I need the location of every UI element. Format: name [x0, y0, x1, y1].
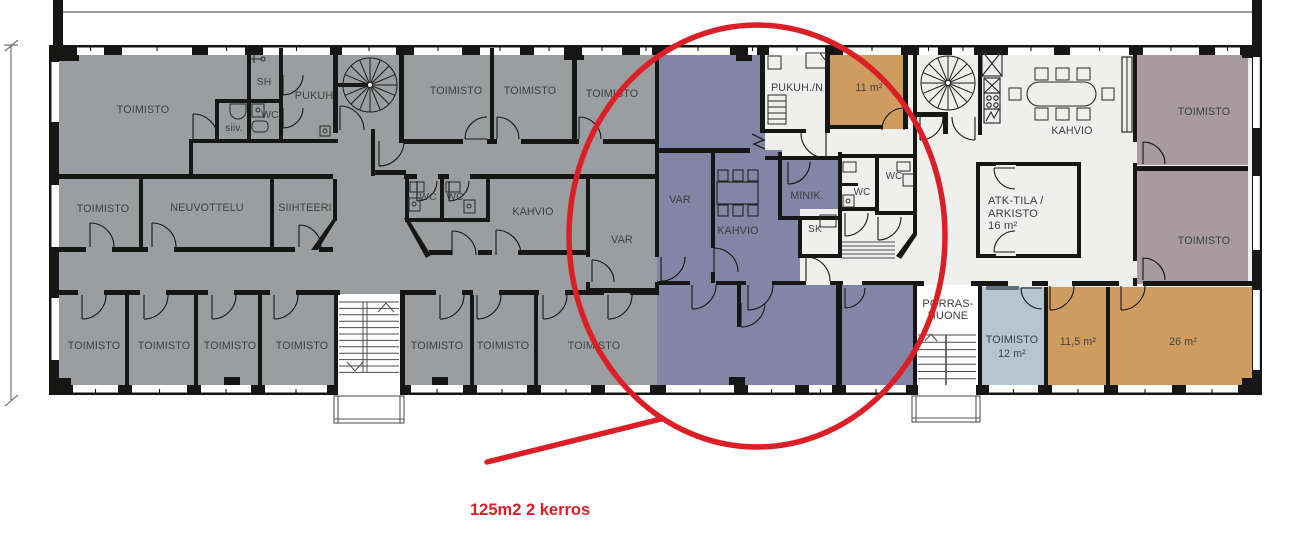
- svg-text:PUKUH./N: PUKUH./N: [771, 82, 823, 94]
- svg-text:TOIMISTO: TOIMISTO: [117, 104, 169, 116]
- svg-text:WC: WC: [886, 171, 903, 182]
- svg-text:SH: SH: [257, 77, 272, 88]
- svg-text:TOIMISTO: TOIMISTO: [1178, 235, 1230, 247]
- svg-text:WC: WC: [446, 192, 463, 203]
- svg-text:TOIMISTO: TOIMISTO: [1178, 106, 1230, 118]
- svg-text:VAR: VAR: [611, 234, 633, 246]
- svg-text:125m2 2 kerros: 125m2 2 kerros: [470, 501, 590, 519]
- svg-text:PORRAS-: PORRAS-: [922, 298, 973, 310]
- svg-text:WC: WC: [854, 187, 871, 198]
- svg-text:ARKISTO: ARKISTO: [988, 208, 1038, 220]
- svg-text:WC: WC: [261, 110, 279, 121]
- svg-text:TOIMISTO: TOIMISTO: [68, 340, 120, 352]
- svg-text:TOIMISTO: TOIMISTO: [138, 340, 190, 352]
- svg-text:11,5 m²: 11,5 m²: [1060, 336, 1096, 348]
- svg-text:KAHVIO: KAHVIO: [1051, 125, 1092, 137]
- svg-text:MINIK.: MINIK.: [790, 190, 823, 202]
- svg-text:TOIMISTO: TOIMISTO: [411, 340, 463, 352]
- svg-text:TOIMISTO: TOIMISTO: [276, 340, 328, 352]
- svg-text:SIIHTEERI: SIIHTEERI: [278, 202, 332, 214]
- svg-text:TOIMISTO: TOIMISTO: [504, 85, 556, 97]
- svg-text:VAR: VAR: [669, 194, 691, 206]
- svg-text:11 m²: 11 m²: [855, 82, 882, 94]
- svg-text:TOIMISTO: TOIMISTO: [986, 334, 1038, 346]
- svg-text:TOIMISTO: TOIMISTO: [204, 340, 256, 352]
- svg-text:SK: SK: [808, 224, 822, 235]
- svg-text:12 m²: 12 m²: [998, 348, 1026, 360]
- svg-text:NEUVOTTELU: NEUVOTTELU: [170, 202, 243, 214]
- svg-text:PUKUH: PUKUH: [295, 90, 334, 102]
- svg-text:26 m²: 26 m²: [1169, 336, 1197, 348]
- svg-text:TOIMISTO: TOIMISTO: [430, 85, 482, 97]
- svg-text:KAHVIO: KAHVIO: [512, 206, 553, 218]
- svg-text:TOIMISTO: TOIMISTO: [477, 340, 529, 352]
- svg-text:WC: WC: [419, 192, 436, 203]
- svg-text:KAHVIO: KAHVIO: [717, 225, 758, 237]
- svg-text:ATK-TILA /: ATK-TILA /: [988, 195, 1044, 207]
- svg-text:16 m²: 16 m²: [988, 220, 1017, 232]
- svg-text:TOIMISTO: TOIMISTO: [77, 203, 129, 215]
- svg-text:siiv.: siiv.: [225, 123, 243, 134]
